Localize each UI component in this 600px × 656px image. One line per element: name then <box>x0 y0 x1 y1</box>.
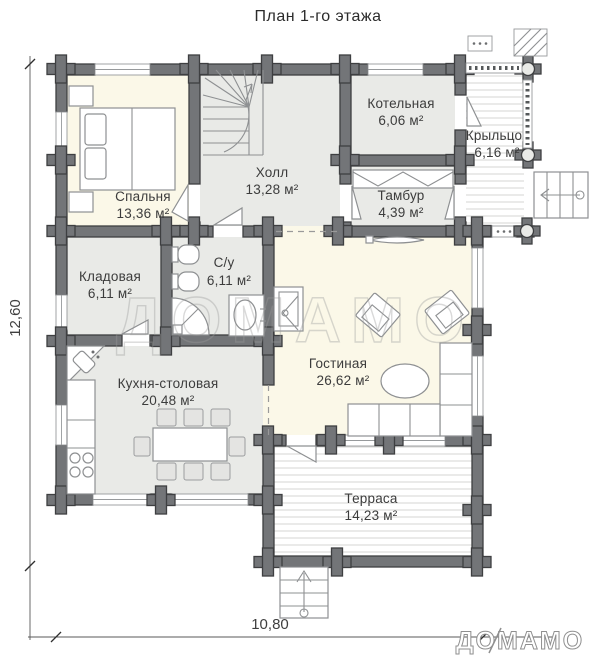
room-name-terrace: Терраса <box>344 491 397 506</box>
dining-table <box>153 428 227 461</box>
nightstand <box>69 86 93 106</box>
window <box>56 405 67 445</box>
bed <box>80 108 175 190</box>
window <box>56 295 67 330</box>
room-name-porch: Крыльцо <box>466 128 522 143</box>
room-area-porch: 6,16 м² <box>474 145 520 160</box>
room-area-bathroom: 6,11 м² <box>207 273 252 288</box>
room-area-bedroom: 13,36 м² <box>117 206 170 221</box>
terrace-steps <box>280 567 328 618</box>
chair <box>184 409 203 426</box>
porch-steps <box>534 172 588 218</box>
chair <box>157 463 176 480</box>
room-area-vestibule: 4,39 м² <box>378 205 424 220</box>
window <box>172 494 248 505</box>
chair <box>157 409 176 426</box>
room-name-hall: Холл <box>256 165 289 180</box>
radiator <box>370 237 424 243</box>
room-name-storage: Кладовая <box>79 269 141 284</box>
room-name-living: Гостиная <box>309 356 367 371</box>
room-area-storage: 6,11 м² <box>88 286 133 301</box>
window <box>368 64 423 75</box>
room-area-boiler: 6,06 м² <box>378 113 424 128</box>
brand-logo: ДОМАМО <box>456 627 584 655</box>
brand-logo-text: ДОМАМО <box>456 627 584 655</box>
room-name-bathroom: С/у <box>214 255 235 270</box>
nightstand <box>69 192 93 212</box>
width-dimension: 10,80 <box>251 616 289 633</box>
chair <box>184 463 203 480</box>
watermark: ДОМАМО <box>116 284 474 356</box>
chimney-vent-symbols <box>468 29 547 56</box>
room-area-terrace: 14,23 м² <box>345 508 398 523</box>
room-name-boiler: Котельная <box>367 96 434 111</box>
chair <box>211 463 230 480</box>
chair <box>134 437 150 456</box>
window <box>95 64 150 75</box>
hall-floor <box>200 75 340 226</box>
room-name-kitchen: Кухня-столовая <box>118 376 219 391</box>
room-area-hall: 13,28 м² <box>246 182 299 197</box>
room-area-kitchen: 20,48 м² <box>142 393 195 408</box>
kitchen-counter <box>67 380 95 494</box>
floor-plan-drawing: ДОМАМО Спальня 13,36 м² Холл 13,28 м² Ко… <box>0 0 600 656</box>
room-name-vestibule: Тамбур <box>377 188 424 203</box>
window <box>472 356 483 416</box>
porch-railing-right <box>523 80 532 148</box>
porch-railing-top <box>466 63 522 73</box>
radiator-valve <box>366 236 373 243</box>
window <box>93 494 150 505</box>
chair <box>229 437 245 456</box>
chair <box>211 409 230 426</box>
coffee-table <box>381 364 429 398</box>
page-title: План 1-го этажа <box>254 8 381 25</box>
toilet <box>172 245 199 264</box>
height-dimension: 12,60 <box>7 299 24 337</box>
window <box>492 226 516 237</box>
floor-plan-page: ДОМАМО Спальня 13,36 м² Холл 13,28 м² Ко… <box>0 0 600 656</box>
room-name-bedroom: Спальня <box>115 189 171 204</box>
room-area-living: 26,62 м² <box>317 373 370 388</box>
vestibule-wardrobe <box>353 170 453 188</box>
